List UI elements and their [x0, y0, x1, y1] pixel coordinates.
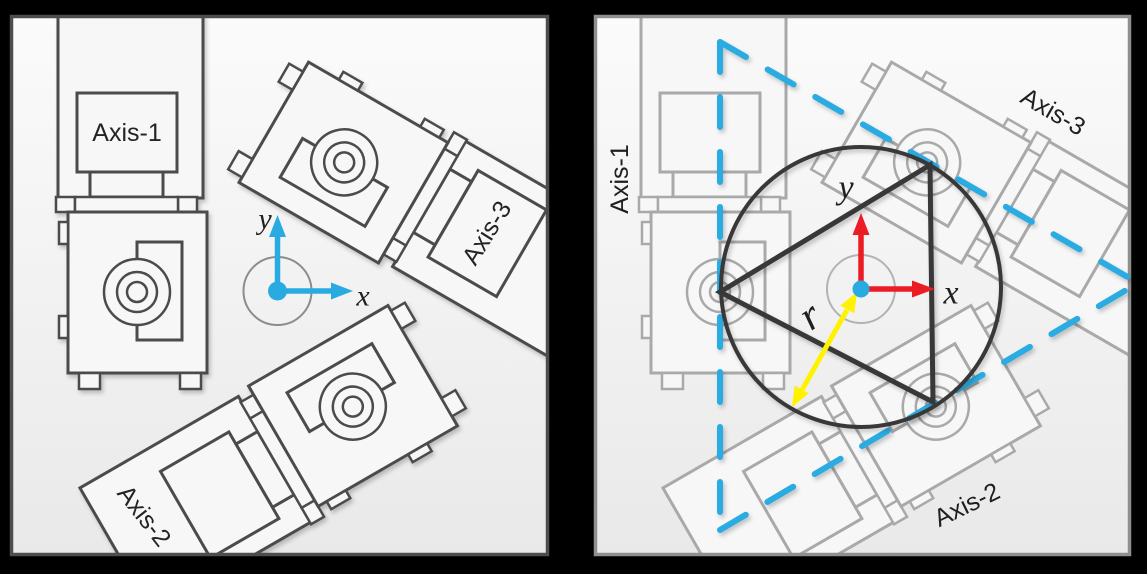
- axis1-assembly: [56, 15, 207, 389]
- x-axis-label: x: [942, 275, 958, 312]
- y-axis-label: y: [255, 203, 272, 236]
- y-axis-label: y: [835, 170, 854, 207]
- axis1-label: Axis-1: [92, 119, 161, 147]
- x-axis-label: x: [355, 280, 370, 313]
- origin-dot: [268, 282, 287, 301]
- left-panel: Axis-1 Axis-3 Axis-2 x y: [12, 15, 625, 574]
- axis1-label: Axis-1: [606, 144, 634, 213]
- right-panel: x y r Axis-1 Axis-3 Axis-2: [596, 15, 1147, 574]
- diagram-canvas: Axis-1 Axis-3 Axis-2 x y: [0, 0, 1147, 574]
- origin-dot: [853, 281, 870, 298]
- three-axis-diagram: Axis-1 Axis-3 Axis-2 x y: [0, 0, 1147, 574]
